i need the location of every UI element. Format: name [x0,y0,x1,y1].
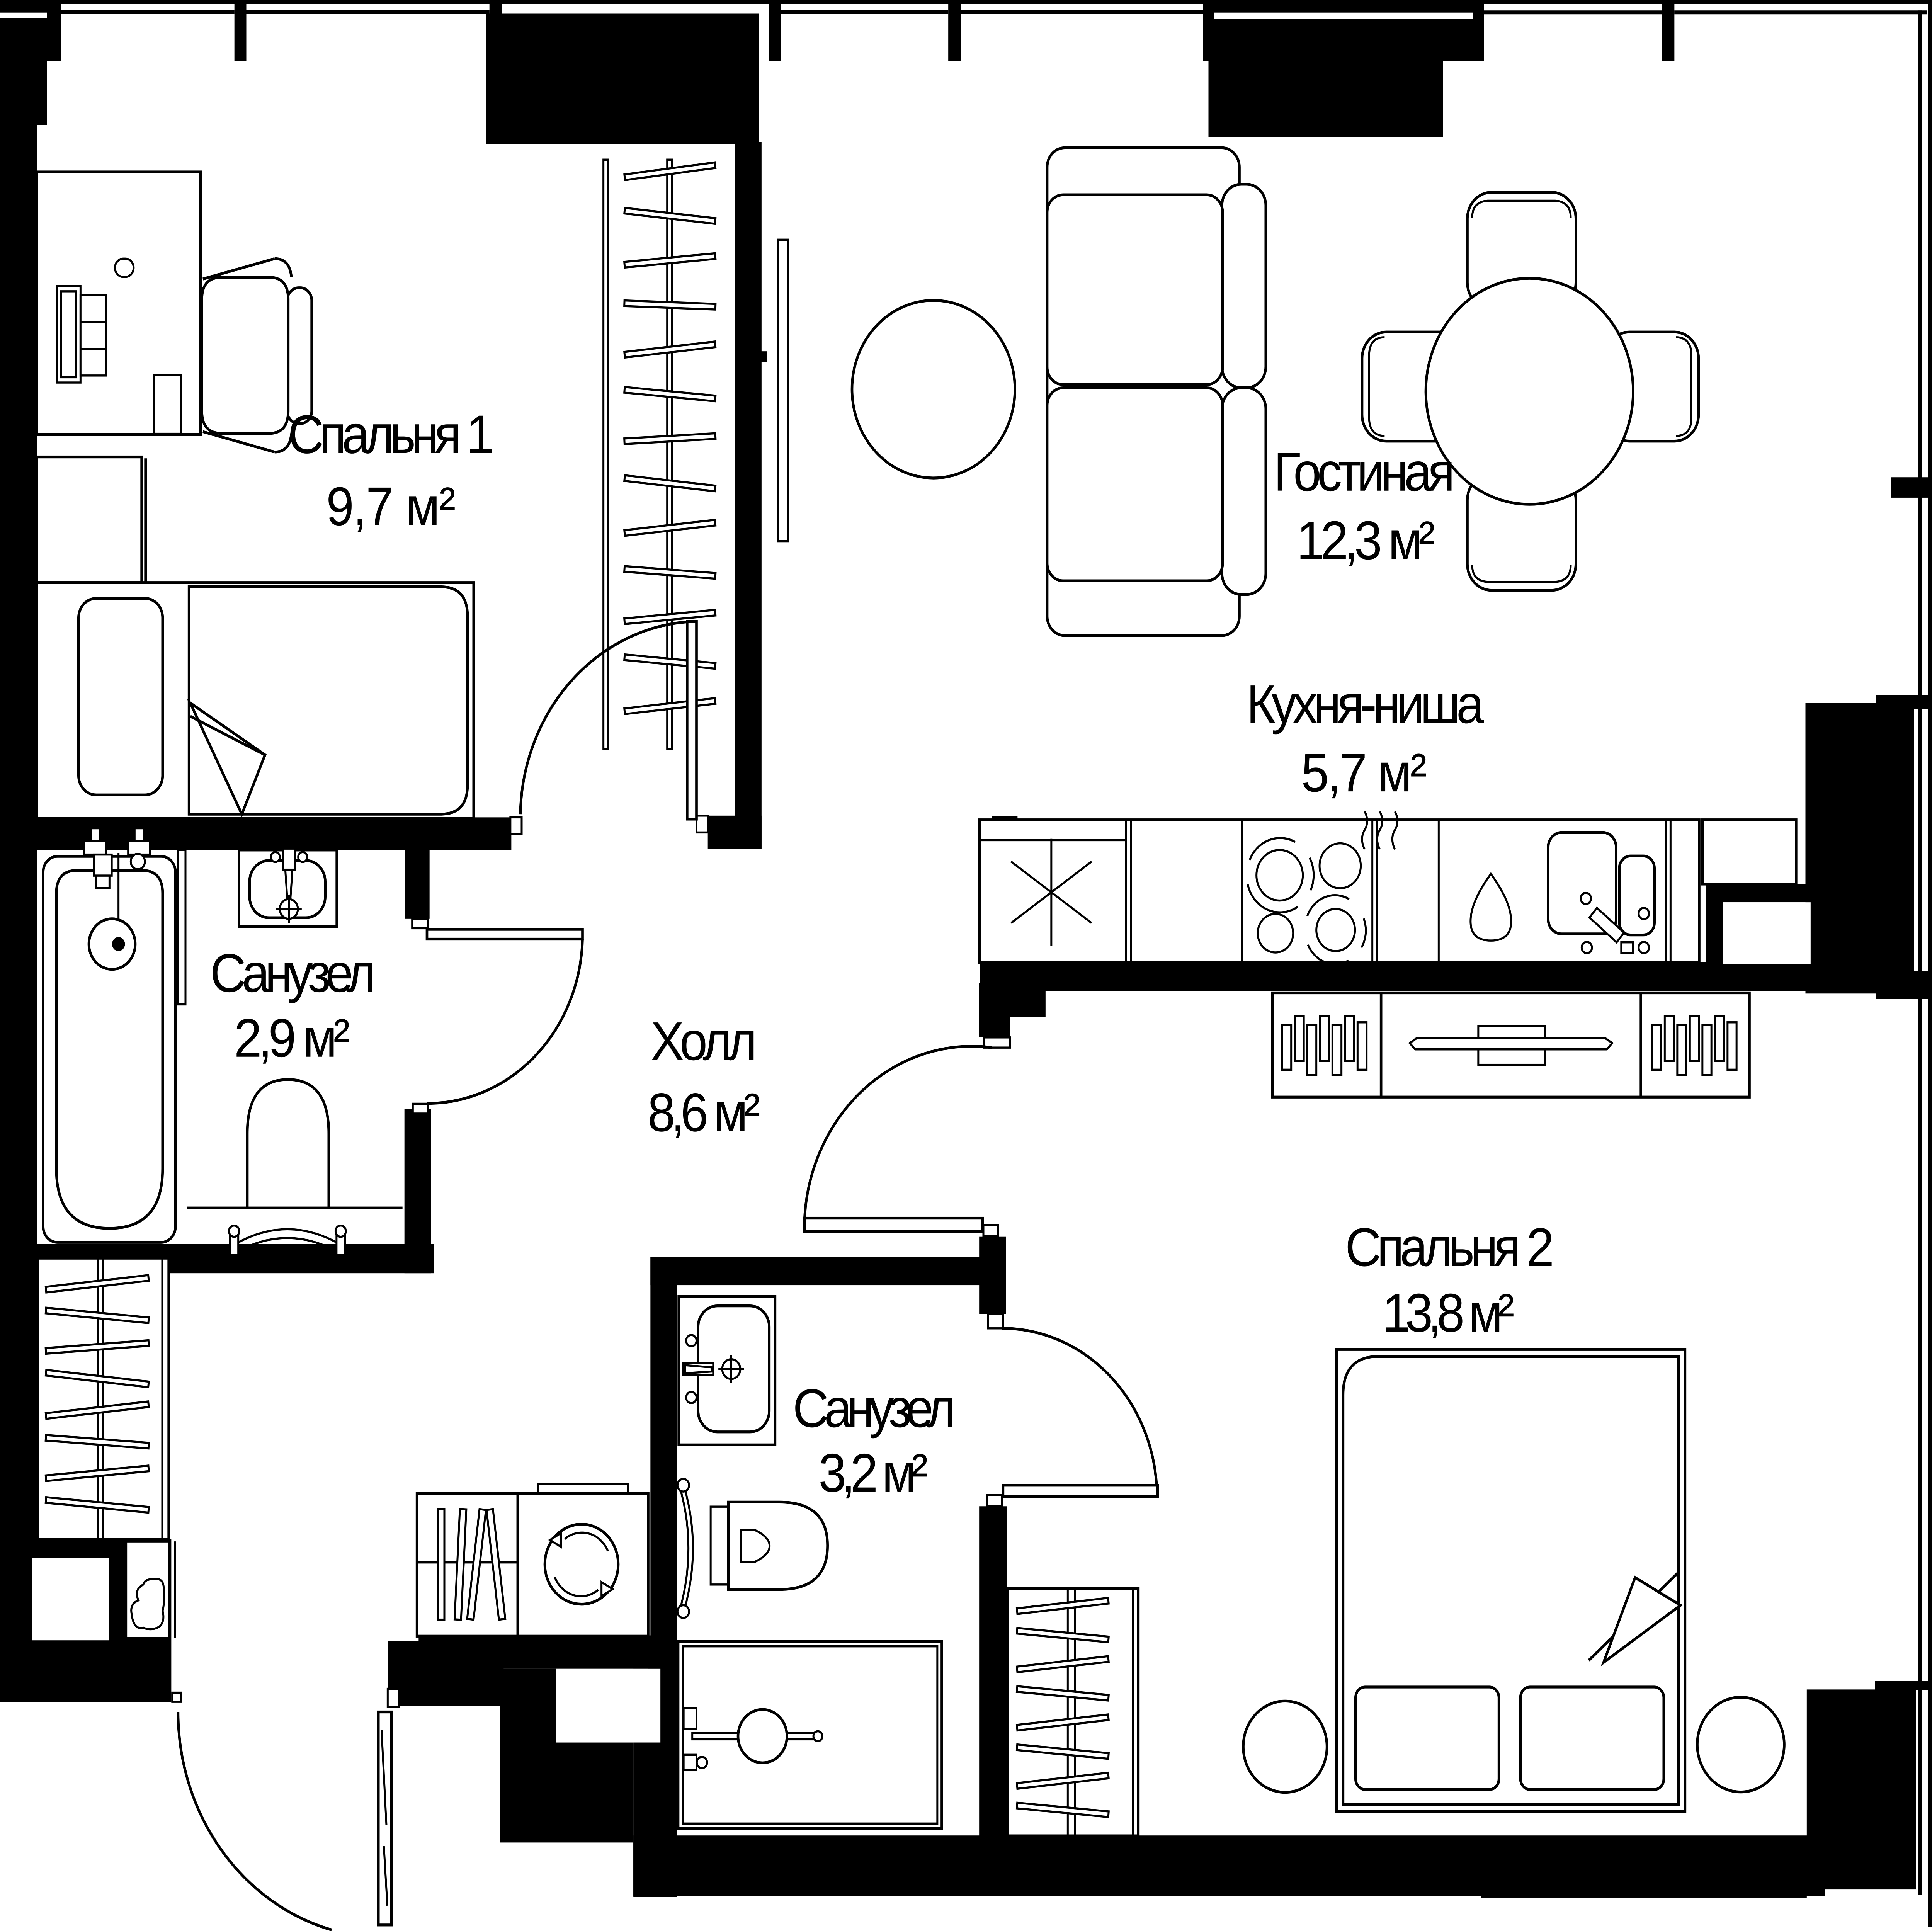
svg-text:Спальня 1: Спальня 1 [288,404,494,464]
svg-text:Холл: Холл [651,1011,757,1071]
svg-text:Спальня 2: Спальня 2 [1345,1217,1554,1277]
svg-text:5,7 м²: 5,7 м² [1301,742,1427,803]
svg-text:12,3 м²: 12,3 м² [1297,510,1435,571]
svg-text:Кухня-ниша: Кухня-ниша [1247,674,1485,735]
svg-text:Санузел: Санузел [210,943,376,1003]
svg-text:Гостиная: Гостиная [1274,442,1455,502]
svg-text:2,9 м²: 2,9 м² [234,1008,350,1068]
svg-text:13,8 м²: 13,8 м² [1383,1282,1515,1343]
svg-text:3,2 м²: 3,2 м² [818,1442,928,1503]
svg-text:Санузел: Санузел [793,1378,956,1439]
svg-text:9,7 м²: 9,7 м² [326,476,456,537]
svg-text:8,6 м²: 8,6 м² [648,1082,760,1143]
